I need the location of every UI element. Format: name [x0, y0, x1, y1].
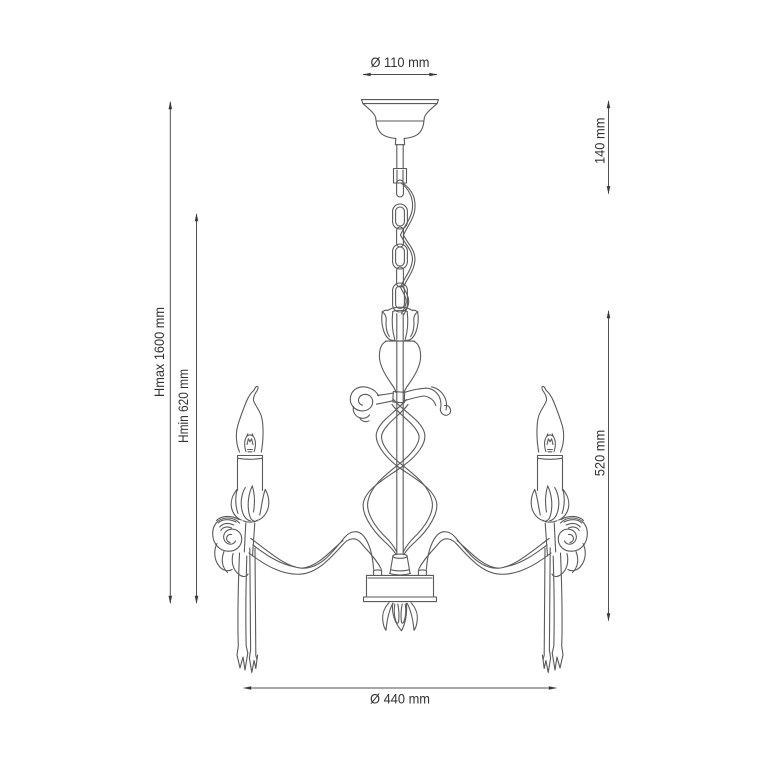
- svg-text:Ø 440 mm: Ø 440 mm: [370, 691, 430, 707]
- svg-text:520 mm: 520 mm: [591, 430, 607, 477]
- svg-text:Hmax 1600 mm: Hmax 1600 mm: [151, 307, 167, 397]
- svg-text:Hmin 620 mm: Hmin 620 mm: [175, 369, 191, 443]
- svg-text:Ø 110 mm: Ø 110 mm: [371, 54, 430, 70]
- svg-text:140 mm: 140 mm: [591, 118, 607, 165]
